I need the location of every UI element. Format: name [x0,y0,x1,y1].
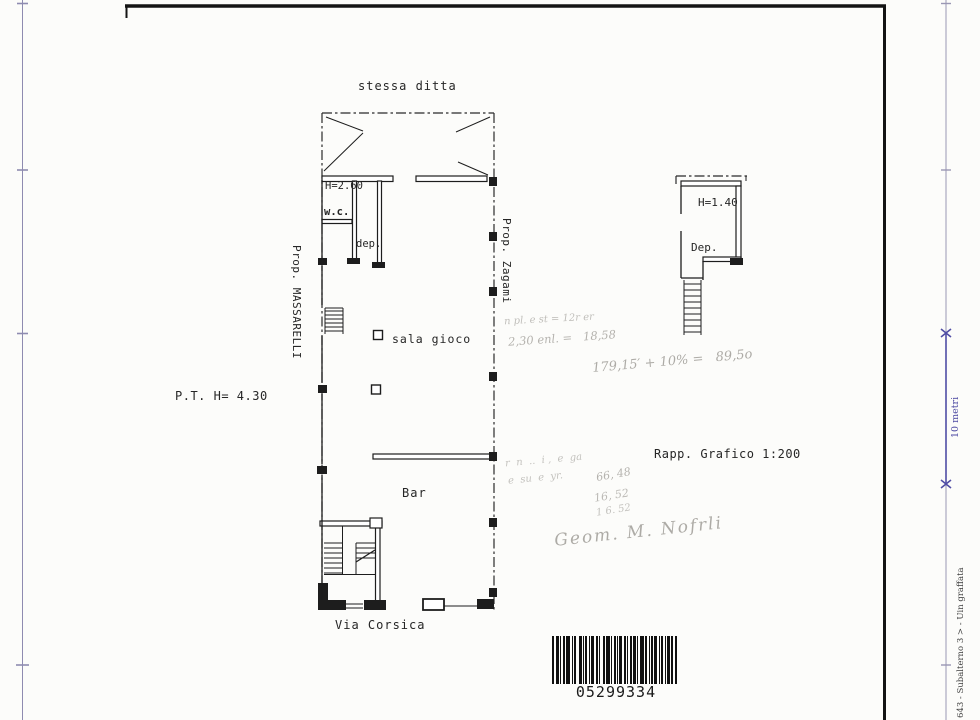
stairs-left-ladder [325,308,343,334]
barcode [552,636,680,684]
label-bar: Bar [402,486,427,500]
right-margin-ruler [941,0,951,720]
barcode-number: 05299334 [548,683,684,701]
label-h-dep: H=1.40 [698,196,738,209]
doc-ref-label: 643 - Subalterno 3 > - Uin graffata [956,567,966,718]
label-stessa-ditta: stessa ditta [358,79,457,93]
label-scale-note: Rapp. Grafico 1:200 [654,447,801,461]
walls [320,176,741,610]
label-pt-height: P.T. H= 4.30 [175,389,268,403]
left-margin-ruler [16,0,29,720]
floorplan-drawing [0,0,980,720]
scale-bar-label: 10 metri [950,397,961,438]
label-via-corsica: Via Corsica [335,618,425,632]
label-dep-small: dep. [356,238,381,250]
label-dep-big: Dep. [691,241,718,254]
scan-frame [125,6,886,720]
label-prop-zagami: Prop. Zagami [500,218,513,303]
label-h-wc: H=2.60 [325,180,363,192]
label-prop-massarelli: Prop. MASSARELLI [290,245,303,359]
columns [372,331,383,395]
top-strip-diagonals [324,117,490,175]
label-wc: w.c. [324,206,349,218]
label-sala-gioco: sala gioco [392,332,471,346]
scanned-document-page: stessa ditta P.T. H= 4.30 Prop. MASSAREL… [0,0,980,720]
stairs-bar [324,526,376,575]
